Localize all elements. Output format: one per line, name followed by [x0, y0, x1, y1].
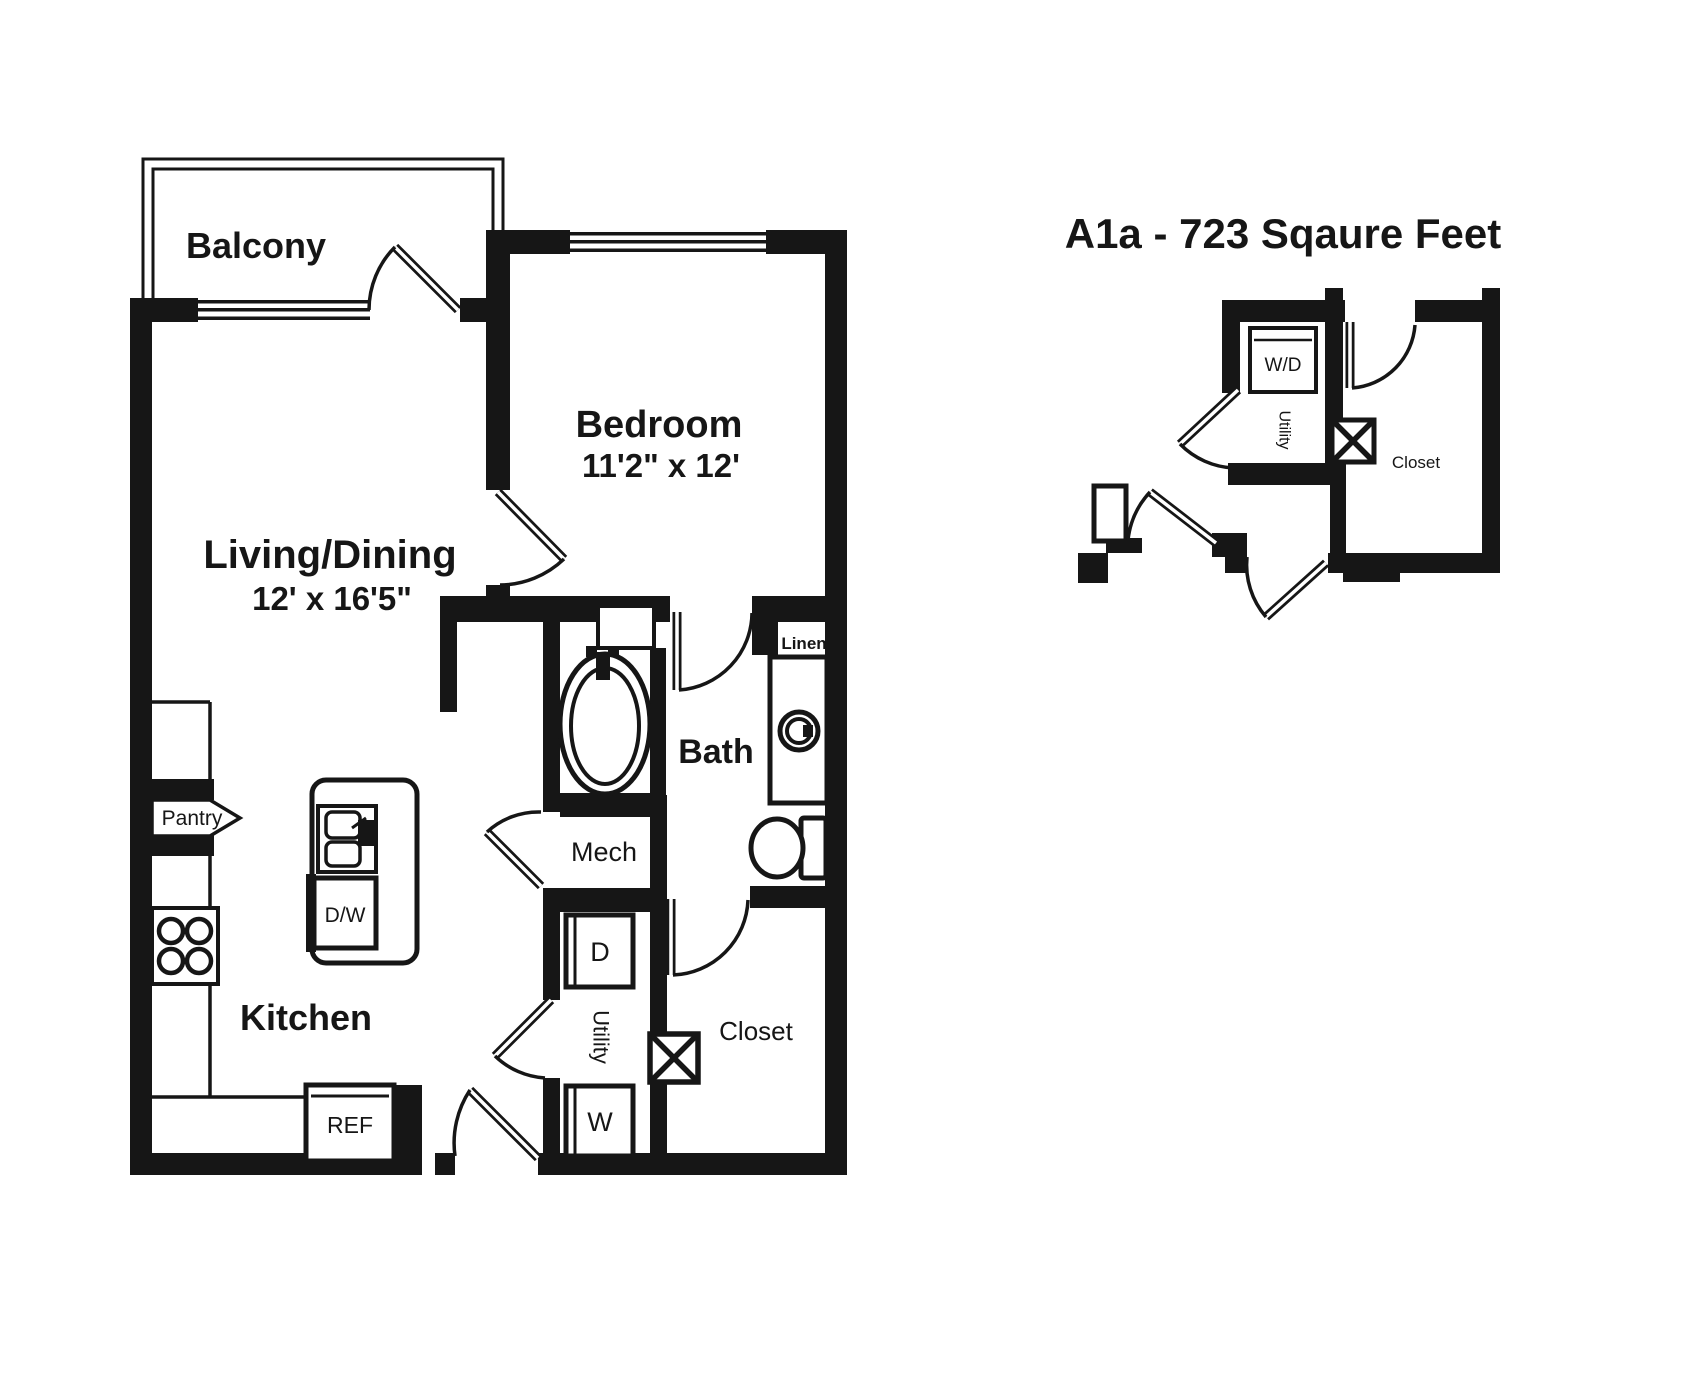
floorplan-canvas: Balcony Living/Dining 12' x 16'5" Bedroo…: [0, 0, 1700, 1377]
pantry-label: Pantry: [162, 807, 223, 830]
kitchen-label: Kitchen: [240, 997, 372, 1038]
stove-icon: [152, 908, 218, 984]
detail-plan: W/D Utility Closet: [1078, 288, 1500, 617]
vanity-sink-icon: [770, 657, 827, 803]
bathtub-icon: [560, 606, 654, 794]
living-window: [198, 298, 370, 322]
kitchen-island: [306, 780, 417, 963]
living-label: Living/Dining: [203, 533, 456, 577]
shelf-x-icon: [650, 1034, 698, 1082]
dryer-label: D: [590, 937, 610, 967]
entry-door: [454, 1090, 538, 1158]
plan-title: A1a - 723 Sqaure Feet: [1065, 210, 1502, 257]
detail-closet-top-door: [1350, 322, 1415, 388]
balcony-label: Balcony: [186, 225, 326, 266]
bedroom-window: [570, 230, 766, 254]
washer-label: W: [587, 1107, 613, 1137]
utility-label: Utility: [589, 1010, 614, 1064]
ref-label: REF: [327, 1112, 373, 1138]
bedroom-label: Bedroom: [576, 404, 743, 446]
bath-door: [677, 612, 752, 690]
detail-utility-label: Utility: [1276, 410, 1293, 449]
bedroom-dims: 11'2" x 12': [582, 447, 740, 484]
detail-wd-label: W/D: [1265, 355, 1302, 376]
toilet-icon: [751, 818, 826, 878]
closet-label: Closet: [719, 1016, 793, 1046]
mech-door: [487, 812, 541, 886]
detail-closet-label: Closet: [1392, 453, 1440, 472]
bath-label: Bath: [678, 733, 754, 771]
detail-shelf-x-icon: [1332, 420, 1374, 462]
detail-utility-door: [1180, 390, 1238, 468]
main-plan: Balcony Living/Dining 12' x 16'5" Bedroo…: [130, 159, 847, 1175]
island-sink-icon: [318, 806, 376, 872]
mech-label: Mech: [571, 837, 637, 867]
linen-label: Linen: [781, 634, 826, 653]
detail-entry-door: [1128, 492, 1216, 543]
dw-label: D/W: [325, 904, 366, 927]
living-dims: 12' x 16'5": [252, 580, 412, 617]
utility-door: [495, 1000, 551, 1078]
floorplan-page: Balcony Living/Dining 12' x 16'5" Bedroo…: [0, 0, 1700, 1377]
